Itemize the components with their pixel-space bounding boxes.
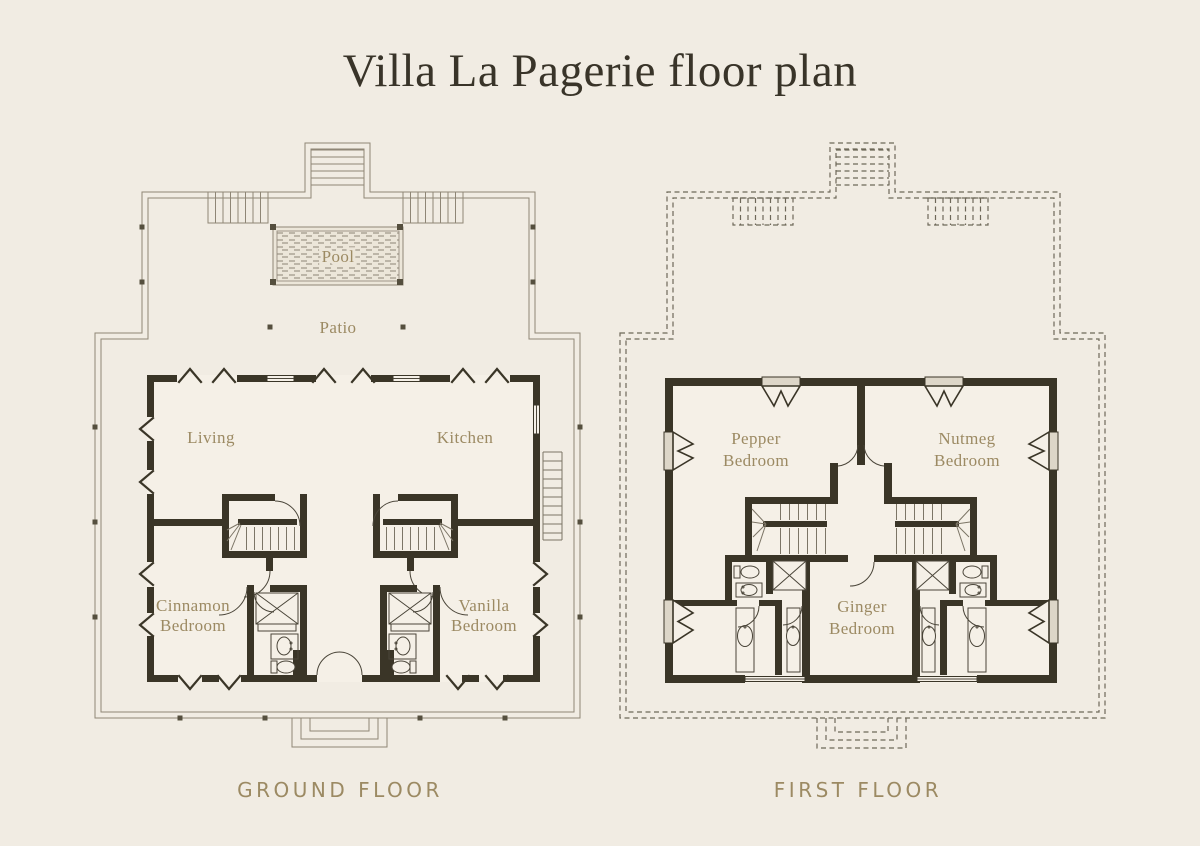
first-floor-plan: Pepper Bedroom Nutmeg Bedroom Ginger Bed… bbox=[620, 143, 1105, 748]
ground-floor-plan: Pool Patio bbox=[93, 143, 583, 747]
toilet-symbol bbox=[392, 661, 416, 673]
toilet-symbol bbox=[734, 566, 759, 578]
room-label-nutmeg-1: Nutmeg bbox=[938, 429, 995, 448]
floorplan-page: Villa La Pagerie floor plan bbox=[0, 0, 1200, 846]
toilet-symbol bbox=[963, 566, 988, 578]
patio-label: Patio bbox=[320, 318, 357, 337]
pool: Pool bbox=[270, 224, 403, 285]
room-label-pepper-2: Bedroom bbox=[723, 451, 789, 470]
room-label-ginger-1: Ginger bbox=[837, 597, 887, 616]
room-label-kitchen: Kitchen bbox=[437, 428, 494, 447]
room-label-pepper-1: Pepper bbox=[731, 429, 781, 448]
exterior-stair-symbol bbox=[543, 452, 562, 540]
ground-floor-caption: GROUND FLOOR bbox=[140, 778, 540, 802]
deck-top-stairs-symbol bbox=[311, 150, 364, 185]
room-label-nutmeg-2: Bedroom bbox=[934, 451, 1000, 470]
room-label-cinnamon-1: Cinnamon bbox=[156, 596, 230, 615]
room-label-ginger-2: Bedroom bbox=[829, 619, 895, 638]
toilet-symbol bbox=[271, 661, 295, 673]
first-floor-caption: FIRST FLOOR bbox=[658, 778, 1058, 802]
room-label-vanilla-2: Bedroom bbox=[451, 616, 517, 635]
shower-symbol bbox=[773, 561, 806, 590]
room-label-vanilla-1: Vanilla bbox=[459, 596, 510, 615]
deck-stairs-symbol bbox=[208, 192, 463, 223]
ground-house-floor bbox=[147, 375, 540, 682]
room-label-living: Living bbox=[187, 428, 235, 447]
pool-label: Pool bbox=[322, 247, 355, 266]
floorplan-drawing: Pool Patio bbox=[0, 0, 1200, 846]
room-label-cinnamon-2: Bedroom bbox=[160, 616, 226, 635]
shower-symbol bbox=[916, 561, 949, 590]
deck-bottom-steps-symbol bbox=[292, 718, 387, 747]
